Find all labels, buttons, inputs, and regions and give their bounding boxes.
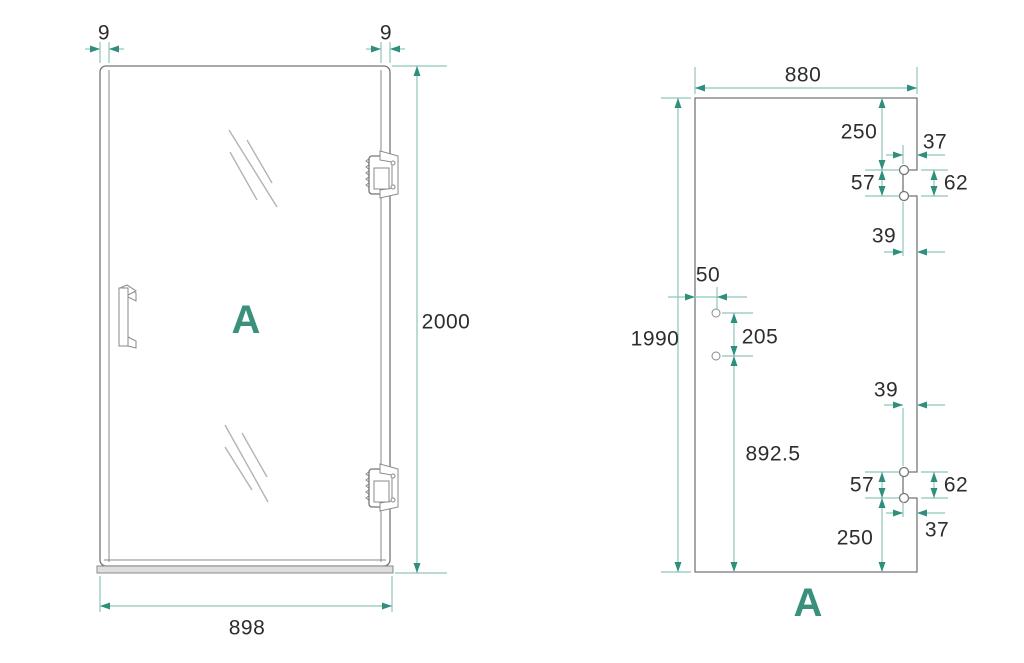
dim-bottom-hinge-cutout: 62 [944, 475, 968, 496]
dim-bottom-hinge-inset: 37 [925, 520, 949, 541]
dim-top-hinge-from-top: 250 [841, 122, 878, 143]
dim-glass-height: 1990 [631, 329, 680, 350]
dim-bottom-hinge-from-bottom: 250 [837, 528, 874, 549]
handle-drill-holes [712, 309, 720, 360]
dim-door-height: 2000 [422, 312, 471, 333]
dim-handle-from-edge: 50 [696, 265, 720, 286]
top-hinge [366, 151, 398, 198]
dim-door-width: 898 [229, 618, 266, 639]
dim-bottom-hinge-center-inset: 39 [874, 380, 898, 401]
hinge-cutout-circles [900, 166, 909, 503]
glass-view-drawing [661, 67, 948, 572]
front-view-label: A [232, 300, 261, 340]
glass-view-label: A [794, 583, 823, 623]
dim-top-hinge-cutout: 62 [944, 173, 968, 194]
dim-top-hinge-center-inset: 39 [872, 226, 896, 247]
technical-drawing-canvas [0, 0, 1024, 663]
door-sill [97, 566, 393, 573]
dim-top-hinge-inset: 37 [923, 132, 947, 153]
glass-outline [695, 98, 917, 572]
dim-glass-width: 880 [785, 65, 822, 86]
front-view-dimension-lines [85, 42, 447, 612]
bottom-hinge [366, 464, 398, 511]
dim-handle-hole-pitch: 205 [742, 327, 779, 348]
dim-bottom-hinge-pitch: 57 [850, 475, 874, 496]
dim-frame-right: 9 [380, 23, 392, 44]
dim-frame-left: 9 [98, 23, 110, 44]
dim-top-hinge-pitch: 57 [851, 173, 875, 194]
door-handle [119, 285, 136, 348]
drawing-page: 9 9 2000 898 A 880 1990 250 37 57 62 39 … [0, 0, 1024, 663]
front-view-drawing [85, 42, 447, 612]
dim-handle-from-bottom: 892.5 [745, 444, 800, 465]
